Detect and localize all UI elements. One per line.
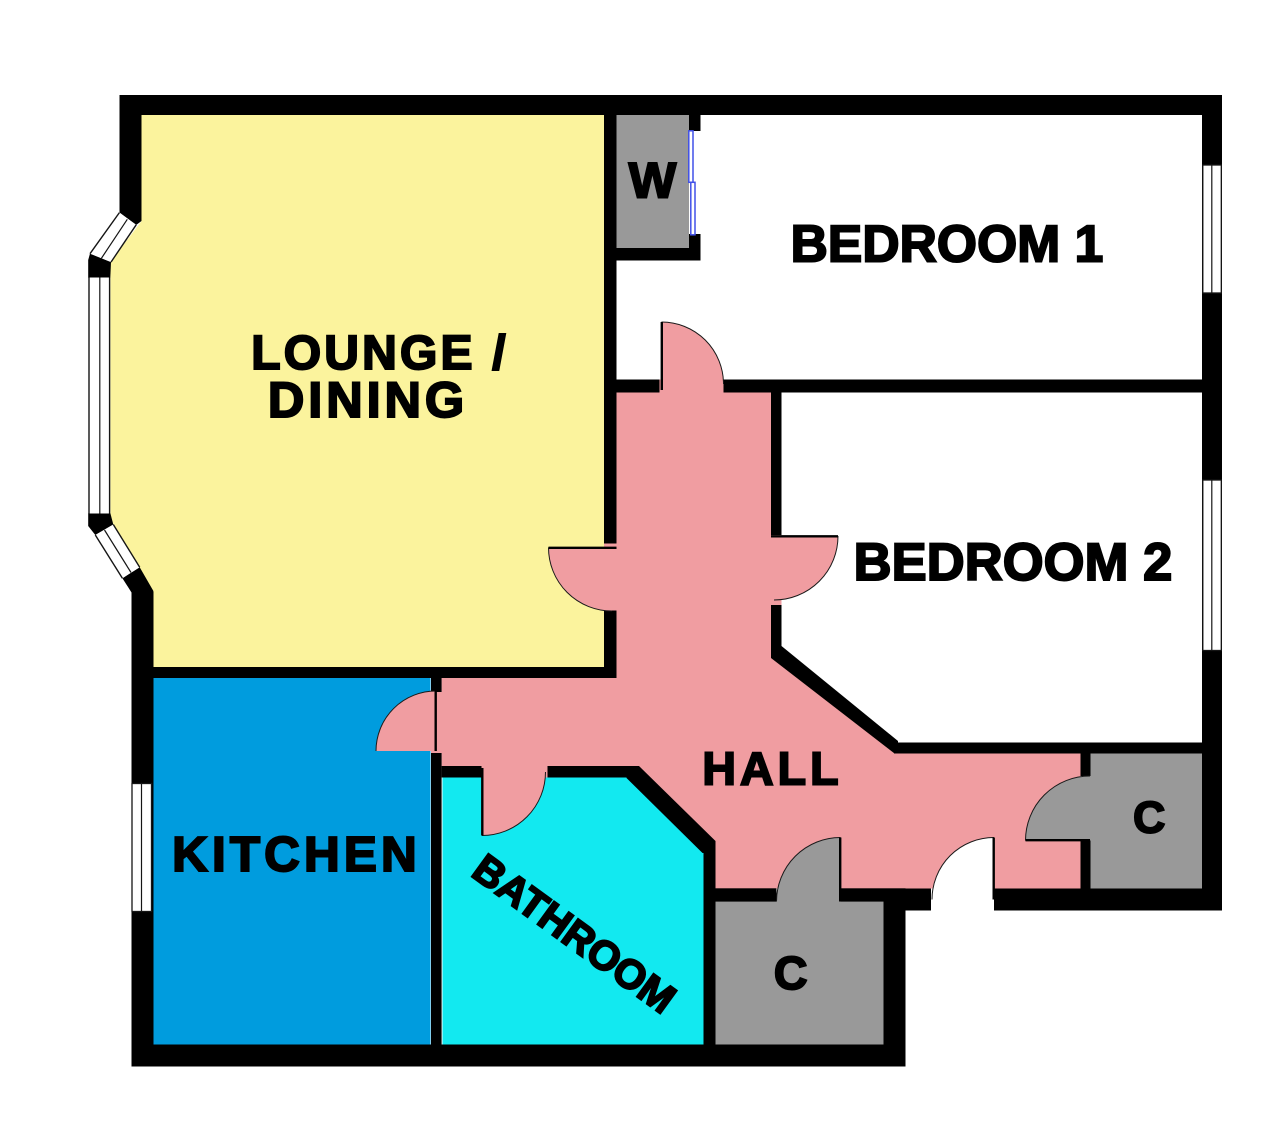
svg-text:DINING: DINING: [268, 371, 468, 428]
svg-text:KITCHEN: KITCHEN: [172, 827, 421, 882]
svg-text:BEDROOM 2: BEDROOM 2: [854, 533, 1173, 592]
svg-text:HALL: HALL: [702, 743, 842, 795]
svg-text:W: W: [629, 152, 677, 209]
svg-text:BEDROOM 1: BEDROOM 1: [791, 215, 1104, 273]
svg-text:C: C: [1133, 793, 1165, 842]
svg-text:C: C: [774, 947, 808, 999]
